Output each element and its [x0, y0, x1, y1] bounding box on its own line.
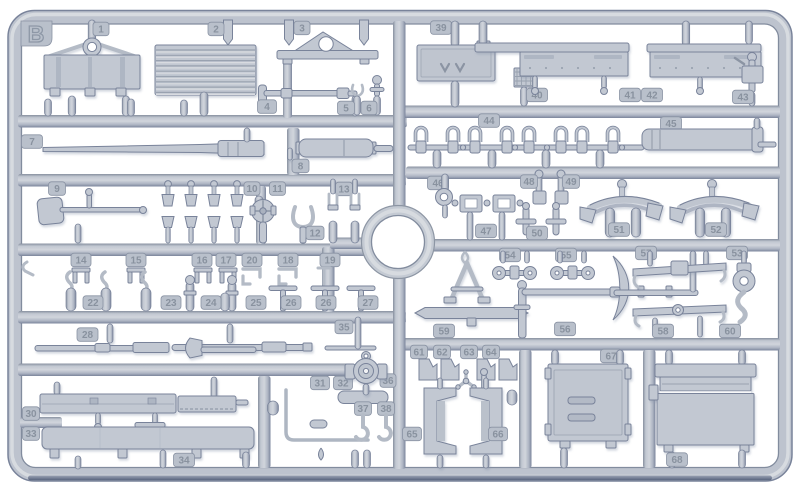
svg-text:49: 49	[565, 177, 577, 188]
svg-text:3: 3	[299, 24, 305, 35]
svg-text:B: B	[28, 21, 45, 47]
svg-text:23: 23	[165, 298, 177, 309]
svg-text:65: 65	[406, 430, 418, 441]
svg-text:47: 47	[480, 227, 492, 238]
svg-text:62: 62	[436, 348, 448, 359]
svg-text:5: 5	[343, 104, 349, 115]
svg-text:28: 28	[82, 330, 94, 341]
svg-text:34: 34	[178, 456, 190, 467]
svg-text:19: 19	[324, 256, 336, 267]
svg-text:45: 45	[665, 119, 677, 130]
svg-text:22: 22	[87, 298, 99, 309]
svg-text:41: 41	[624, 91, 636, 102]
svg-text:18: 18	[282, 256, 294, 267]
svg-text:39: 39	[435, 23, 447, 34]
svg-text:31: 31	[314, 379, 326, 390]
svg-text:59: 59	[438, 327, 450, 338]
svg-text:4: 4	[264, 102, 270, 113]
svg-text:68: 68	[671, 455, 683, 466]
svg-text:25: 25	[250, 298, 262, 309]
svg-text:52: 52	[710, 225, 722, 236]
svg-text:11: 11	[272, 184, 283, 195]
svg-text:15: 15	[130, 256, 142, 267]
svg-text:54: 54	[504, 251, 516, 262]
svg-text:10: 10	[246, 184, 258, 195]
svg-text:14: 14	[75, 256, 87, 267]
svg-text:44: 44	[483, 116, 495, 127]
svg-text:24: 24	[205, 298, 217, 309]
svg-text:50: 50	[531, 229, 543, 240]
svg-text:61: 61	[413, 348, 425, 359]
svg-text:67: 67	[605, 352, 617, 363]
svg-text:7: 7	[29, 137, 35, 148]
svg-text:48: 48	[523, 177, 535, 188]
svg-text:43: 43	[737, 93, 749, 104]
svg-text:13: 13	[338, 185, 350, 196]
svg-text:2: 2	[213, 25, 219, 36]
svg-text:30: 30	[25, 409, 37, 420]
svg-text:12: 12	[309, 229, 321, 240]
svg-text:16: 16	[196, 256, 208, 267]
svg-text:8: 8	[298, 162, 304, 173]
svg-text:1: 1	[98, 25, 104, 36]
svg-text:63: 63	[463, 348, 475, 359]
svg-text:32: 32	[337, 379, 349, 390]
svg-text:56: 56	[559, 325, 571, 336]
svg-text:20: 20	[246, 256, 258, 267]
svg-text:60: 60	[724, 327, 736, 338]
svg-text:33: 33	[25, 429, 37, 440]
svg-text:9: 9	[54, 184, 60, 195]
svg-text:58: 58	[657, 327, 669, 338]
svg-text:42: 42	[646, 91, 658, 102]
svg-text:51: 51	[613, 225, 625, 236]
svg-text:26: 26	[320, 298, 332, 309]
svg-text:17: 17	[220, 256, 232, 267]
svg-text:66: 66	[492, 430, 504, 441]
svg-text:26: 26	[285, 298, 297, 309]
svg-text:27: 27	[362, 298, 374, 309]
svg-text:35: 35	[338, 323, 350, 334]
svg-text:6: 6	[366, 104, 372, 115]
svg-text:64: 64	[485, 348, 497, 359]
